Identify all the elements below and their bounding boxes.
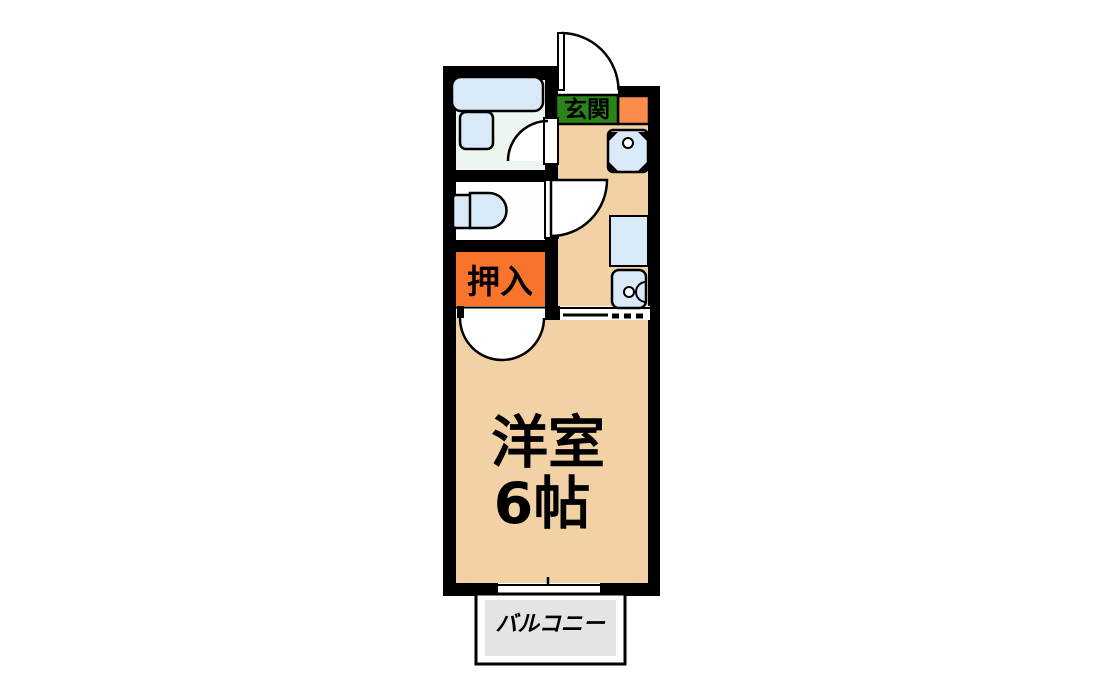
entrance-door-leaf <box>558 33 564 90</box>
pan-body <box>608 130 648 172</box>
kitchen-sink-drain <box>624 287 634 297</box>
wall-toilet-closet <box>443 240 558 252</box>
kitchen-sink <box>612 270 646 308</box>
entrance-sign: 玄関 <box>556 95 618 124</box>
bathroom-door-leaf <box>544 118 558 164</box>
kitchen-counter <box>610 216 648 266</box>
bathtub <box>452 77 543 111</box>
washbasin <box>460 112 493 149</box>
balcony-area: バルコニー <box>476 594 625 664</box>
room-name-label: 洋室 <box>491 410 605 476</box>
closet-door-post <box>457 306 464 318</box>
floor-plan-page: 玄関 バルコニー 押入 洋室 6帖 <box>0 0 1100 694</box>
room-size-label: 6帖 <box>494 471 591 537</box>
closet-label: 押入 <box>467 262 533 301</box>
wall-room-stub <box>545 306 561 320</box>
toilet <box>453 193 507 228</box>
wall-right <box>648 86 660 596</box>
washing-machine-pan <box>608 130 648 172</box>
wall-left <box>443 66 456 596</box>
floor-plan: 玄関 バルコニー 押入 洋室 6帖 <box>0 0 1100 694</box>
wall-top-right <box>618 86 660 96</box>
toilet-bowl <box>470 193 507 228</box>
pan-drain <box>623 138 633 148</box>
wall-bath-toilet <box>443 170 558 182</box>
balcony-label: バルコニー <box>495 612 606 637</box>
entrance-label: 玄関 <box>564 96 610 123</box>
entrance-step <box>618 96 649 124</box>
